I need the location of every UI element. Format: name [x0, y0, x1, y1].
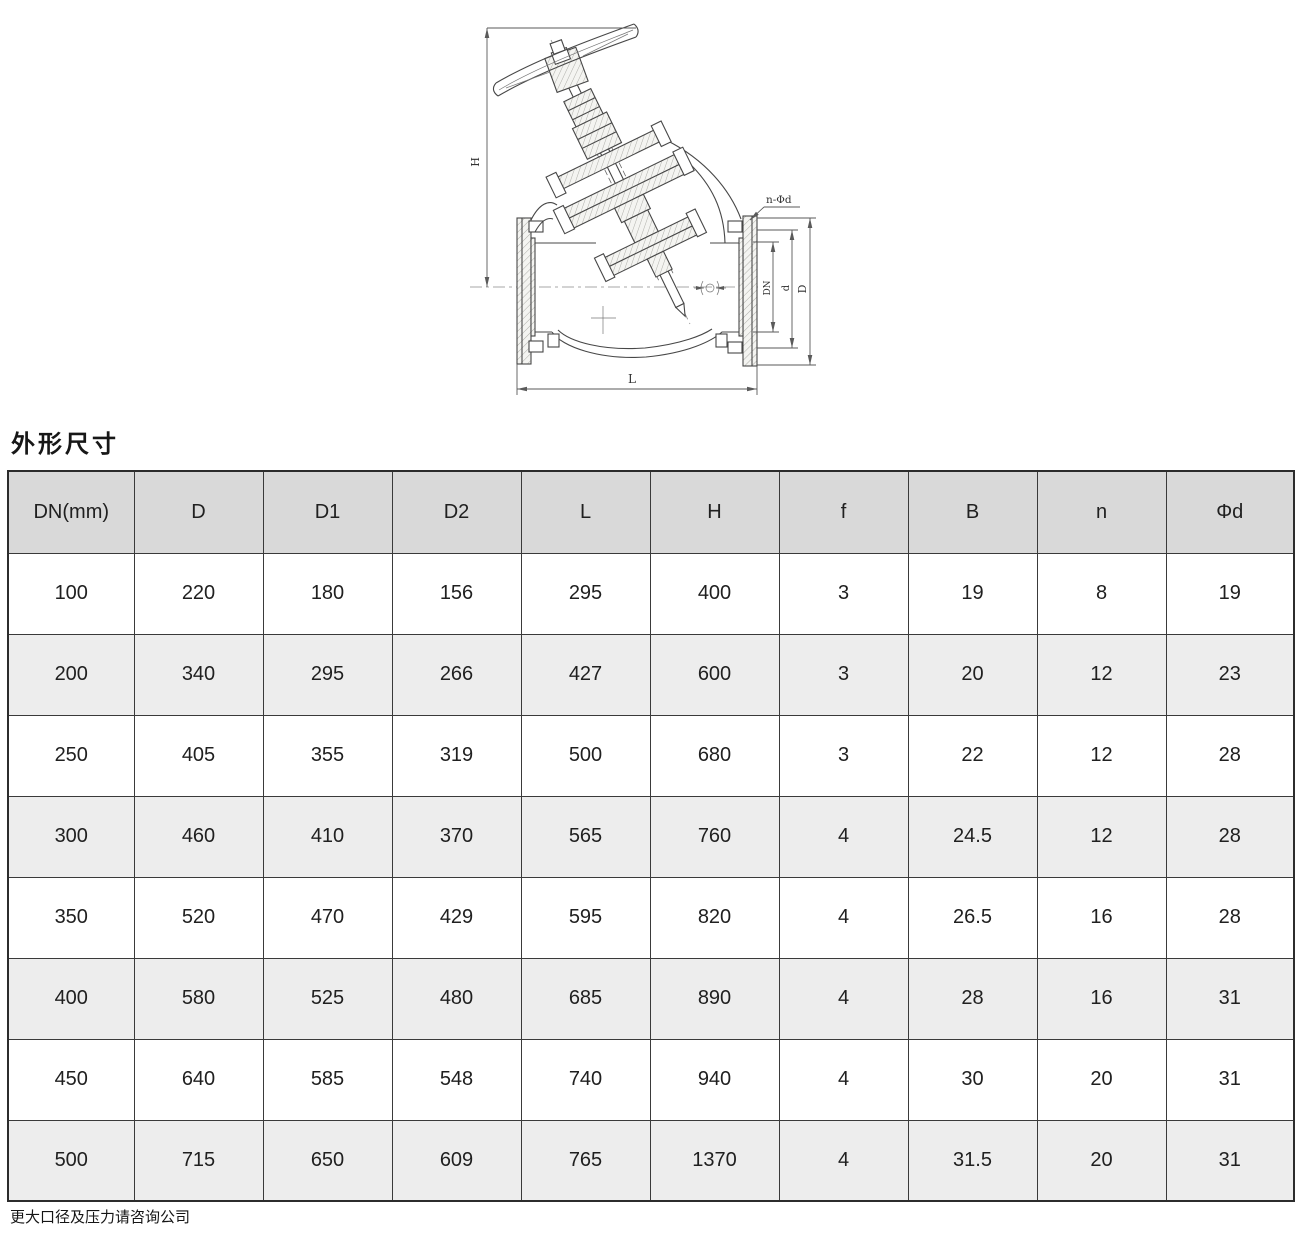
dim-label-l: L [628, 372, 636, 386]
table-cell: 525 [263, 958, 392, 1039]
dim-label-h: H [469, 157, 482, 167]
table-cell: 400 [650, 553, 779, 634]
table-cell: 340 [134, 634, 263, 715]
table-cell: 28 [1166, 877, 1294, 958]
table-cell: 24.5 [908, 796, 1037, 877]
table-cell: 3 [779, 634, 908, 715]
header-cell-d: D [134, 471, 263, 553]
table-cell: 28 [908, 958, 1037, 1039]
dim-label-n-phi-d: n-Φd [766, 194, 792, 206]
table-row: 300 460 410 370 565 760 4 24.5 12 28 [8, 796, 1294, 877]
table-cell: 26.5 [908, 877, 1037, 958]
table-cell: 355 [263, 715, 392, 796]
table-cell: 429 [392, 877, 521, 958]
table-cell: 180 [263, 553, 392, 634]
table-cell: 350 [8, 877, 134, 958]
table-cell: 4 [779, 796, 908, 877]
table-cell: 680 [650, 715, 779, 796]
table-cell: 31 [1166, 958, 1294, 1039]
table-row: 250 405 355 319 500 680 3 22 12 28 [8, 715, 1294, 796]
table-cell: 22 [908, 715, 1037, 796]
header-cell-h: H [650, 471, 779, 553]
table-cell: 500 [8, 1120, 134, 1201]
table-cell: 4 [779, 1120, 908, 1201]
table-cell: 156 [392, 553, 521, 634]
table-cell: 580 [134, 958, 263, 1039]
dimensions-table: DN(mm) D D1 D2 L H f B n Φd 100 220 180 … [7, 470, 1295, 1202]
table-cell: 19 [1166, 553, 1294, 634]
header-cell-phid: Φd [1166, 471, 1294, 553]
table-row: 400 580 525 480 685 890 4 28 16 31 [8, 958, 1294, 1039]
table-cell: 8 [1037, 553, 1166, 634]
table-cell: 600 [650, 634, 779, 715]
table-cell: 940 [650, 1039, 779, 1120]
dim-label-dn: DN [763, 280, 773, 295]
table-cell: 4 [779, 1039, 908, 1120]
table-cell: 548 [392, 1039, 521, 1120]
table-cell: 740 [521, 1039, 650, 1120]
table-cell: 16 [1037, 958, 1166, 1039]
table-cell: 480 [392, 958, 521, 1039]
handwheel [493, 24, 638, 96]
table-row: 450 640 585 548 740 940 4 30 20 31 [8, 1039, 1294, 1120]
table-row: 500 715 650 609 765 1370 4 31.5 20 31 [8, 1120, 1294, 1201]
table-cell: 4 [779, 958, 908, 1039]
table-cell: 100 [8, 553, 134, 634]
table-cell: 20 [1037, 1039, 1166, 1120]
table-cell: 28 [1166, 715, 1294, 796]
header-cell-l: L [521, 471, 650, 553]
header-cell-d1: D1 [263, 471, 392, 553]
table-cell: 595 [521, 877, 650, 958]
header-cell-n: n [1037, 471, 1166, 553]
table-cell: 4 [779, 877, 908, 958]
table-cell: 500 [521, 715, 650, 796]
table-cell: 3 [779, 715, 908, 796]
dim-label-big-d: D [796, 284, 809, 293]
section-title: 外形尺寸 [11, 424, 119, 459]
table-cell: 319 [392, 715, 521, 796]
table-cell: 23 [1166, 634, 1294, 715]
table-cell: 370 [392, 796, 521, 877]
bonnet-stem-assembly [507, 53, 750, 348]
table-cell: 1370 [650, 1120, 779, 1201]
table-cell: 220 [134, 553, 263, 634]
table-cell: 450 [8, 1039, 134, 1120]
table-header-row: DN(mm) D D1 D2 L H f B n Φd [8, 471, 1294, 553]
table-cell: 715 [134, 1120, 263, 1201]
table-cell: 585 [263, 1039, 392, 1120]
table-cell: 685 [521, 958, 650, 1039]
table-cell: 609 [392, 1120, 521, 1201]
table-cell: 460 [134, 796, 263, 877]
table-cell: 12 [1037, 796, 1166, 877]
table-cell: 31 [1166, 1039, 1294, 1120]
table-cell: 20 [908, 634, 1037, 715]
table-cell: 250 [8, 715, 134, 796]
table-cell: 16 [1037, 877, 1166, 958]
table-cell: 410 [263, 796, 392, 877]
table-cell: 470 [263, 877, 392, 958]
dim-label-d: d [781, 284, 792, 291]
table-cell: 765 [521, 1120, 650, 1201]
table-cell: 295 [521, 553, 650, 634]
table-cell: 820 [650, 877, 779, 958]
table-cell: 890 [650, 958, 779, 1039]
table-cell: 300 [8, 796, 134, 877]
header-cell-dn: DN(mm) [8, 471, 134, 553]
table-cell: 650 [263, 1120, 392, 1201]
header-cell-b: B [908, 471, 1037, 553]
header-cell-f: f [779, 471, 908, 553]
valve-technical-drawing: H L DN d [430, 0, 900, 412]
table-cell: 266 [392, 634, 521, 715]
table-row: 350 520 470 429 595 820 4 26.5 16 28 [8, 877, 1294, 958]
table-cell: 565 [521, 796, 650, 877]
footer-note: 更大口径及压力请咨询公司 [10, 1206, 190, 1227]
table-row: 200 340 295 266 427 600 3 20 12 23 [8, 634, 1294, 715]
table-cell: 31.5 [908, 1120, 1037, 1201]
catalog-page: H L DN d [0, 0, 1300, 1238]
table-cell: 400 [8, 958, 134, 1039]
table-cell: 20 [1037, 1120, 1166, 1201]
table-row: 100 220 180 156 295 400 3 19 8 19 [8, 553, 1294, 634]
table-cell: 19 [908, 553, 1037, 634]
header-cell-d2: D2 [392, 471, 521, 553]
bore-symbol [694, 281, 726, 295]
table-cell: 12 [1037, 715, 1166, 796]
table-cell: 760 [650, 796, 779, 877]
table-cell: 295 [263, 634, 392, 715]
table-cell: 640 [134, 1039, 263, 1120]
table-cell: 12 [1037, 634, 1166, 715]
table-cell: 200 [8, 634, 134, 715]
table-cell: 28 [1166, 796, 1294, 877]
table-cell: 520 [134, 877, 263, 958]
table-cell: 31 [1166, 1120, 1294, 1201]
table-cell: 30 [908, 1039, 1037, 1120]
table-cell: 427 [521, 634, 650, 715]
table-cell: 405 [134, 715, 263, 796]
table-cell: 3 [779, 553, 908, 634]
